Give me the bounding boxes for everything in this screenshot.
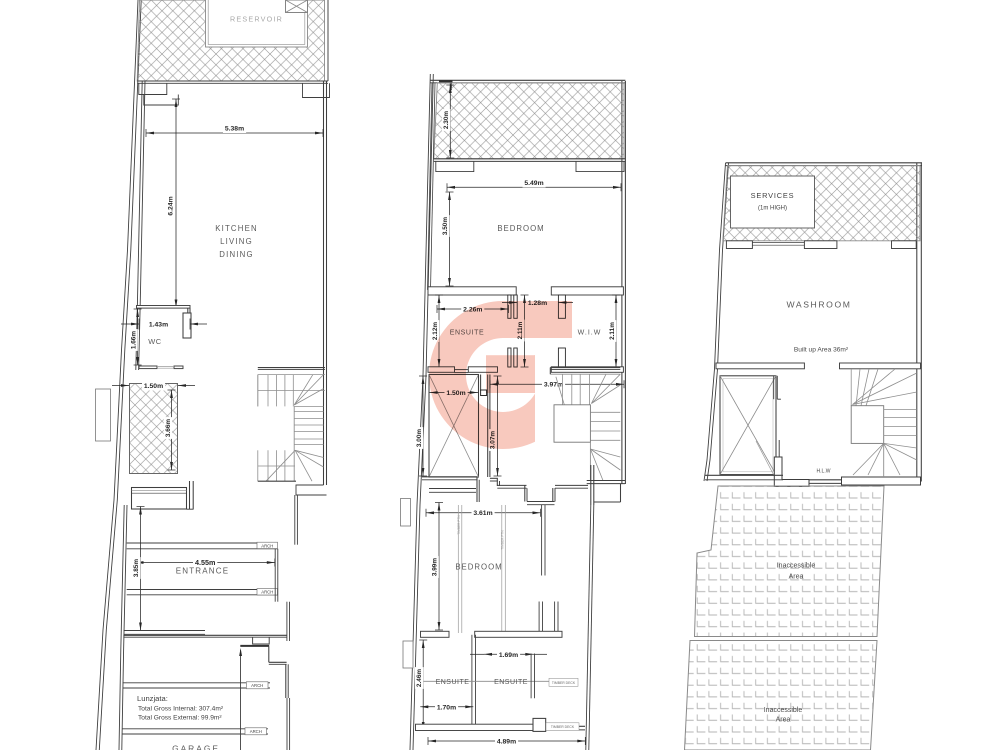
svg-text:Area: Area	[776, 717, 791, 724]
svg-text:3.00m: 3.00m	[416, 429, 423, 447]
svg-text:2.46m: 2.46m	[416, 669, 423, 687]
svg-text:3.61m: 3.61m	[473, 510, 492, 517]
svg-text:4.89m: 4.89m	[497, 738, 516, 745]
svg-text:Lunzjata:: Lunzjata:	[137, 694, 168, 703]
svg-text:Area: Area	[789, 574, 804, 581]
svg-text:2.12m: 2.12m	[432, 322, 439, 340]
svg-text:1.50m: 1.50m	[144, 383, 163, 390]
svg-text:TIMBER DECK: TIMBER DECK	[552, 681, 576, 685]
svg-text:W.I.W: W.I.W	[578, 330, 602, 337]
svg-text:GARAGE: GARAGE	[172, 744, 220, 750]
svg-text:WASHROOM: WASHROOM	[787, 300, 852, 310]
svg-text:ENSUITE: ENSUITE	[436, 679, 470, 686]
svg-text:3.99m: 3.99m	[431, 558, 438, 576]
svg-text:ARCH: ARCH	[261, 543, 273, 548]
svg-text:TIMBER DECK: TIMBER DECK	[551, 725, 575, 729]
svg-text:ENTRANCE: ENTRANCE	[176, 567, 230, 576]
svg-text:1.66m: 1.66m	[130, 331, 137, 349]
svg-text:3.85m: 3.85m	[133, 559, 140, 577]
svg-text:BEDROOM: BEDROOM	[455, 563, 502, 572]
svg-text:Inaccessible: Inaccessible	[777, 563, 816, 570]
svg-text:1.70m: 1.70m	[437, 704, 456, 711]
svg-text:6.24m: 6.24m	[168, 196, 175, 215]
svg-text:KITCHEN: KITCHEN	[215, 224, 258, 233]
svg-text:Total Gross Internal: 307.4m²: Total Gross Internal: 307.4m²	[138, 706, 224, 713]
svg-text:TIMBER PTN: TIMBER PTN	[501, 530, 505, 550]
svg-text:RESERVOIR: RESERVOIR	[230, 15, 283, 24]
svg-text:3.66m: 3.66m	[165, 419, 172, 437]
svg-text:LIVING: LIVING	[220, 237, 253, 246]
svg-text:5.38m: 5.38m	[225, 126, 244, 133]
svg-text:TIMBER PTN: TIMBER PTN	[457, 515, 461, 535]
svg-text:ARCH: ARCH	[251, 683, 263, 688]
svg-text:BEDROOM: BEDROOM	[497, 224, 544, 233]
svg-text:1.69m: 1.69m	[499, 652, 518, 659]
svg-text:WC: WC	[148, 337, 162, 346]
svg-text:5.49m: 5.49m	[524, 180, 543, 187]
svg-text:(1m HIGH): (1m HIGH)	[758, 206, 787, 212]
svg-text:4.55m: 4.55m	[195, 558, 215, 567]
svg-text:Built up Area 36m²: Built up Area 36m²	[794, 347, 849, 354]
svg-text:SERVICES: SERVICES	[751, 191, 795, 200]
svg-text:Inaccessible: Inaccessible	[764, 707, 803, 714]
svg-text:H.L.W: H.L.W	[817, 469, 831, 475]
svg-text:2.11m: 2.11m	[609, 322, 616, 340]
svg-text:ENSUITE: ENSUITE	[494, 679, 528, 686]
svg-text:ARCH: ARCH	[250, 729, 262, 734]
svg-text:2.30m: 2.30m	[443, 111, 450, 129]
svg-text:DINING: DINING	[219, 250, 254, 259]
svg-text:Total Gross External: 99.9m²: Total Gross External: 99.9m²	[138, 715, 222, 722]
svg-text:ARCH: ARCH	[261, 590, 273, 595]
svg-text:3.50m: 3.50m	[442, 217, 449, 235]
svg-text:1.43m: 1.43m	[149, 322, 168, 329]
